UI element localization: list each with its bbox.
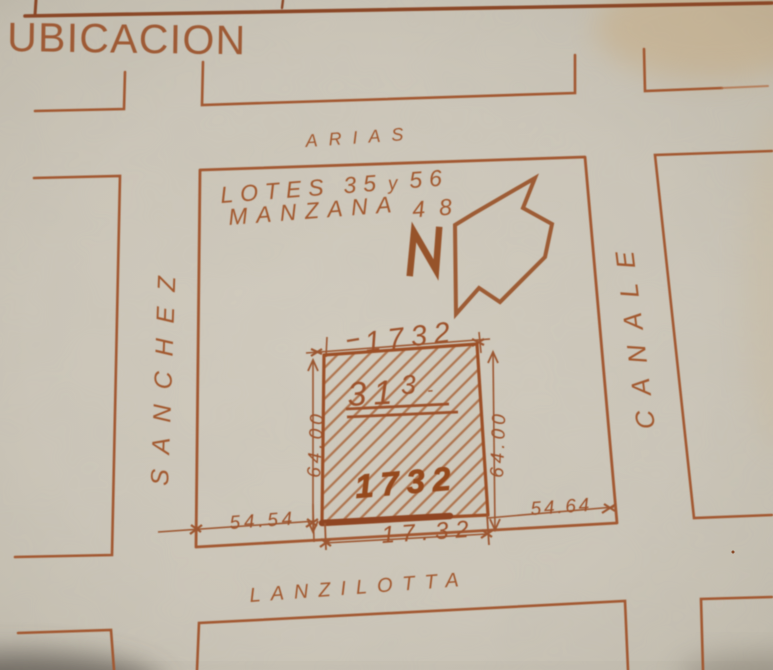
svg-text:64.00: 64.00 [487, 410, 510, 478]
svg-text:54.64: 54.64 [530, 495, 593, 520]
svg-text:UBICACION: UBICACION [7, 14, 246, 63]
svg-text:64.00: 64.00 [304, 410, 329, 479]
